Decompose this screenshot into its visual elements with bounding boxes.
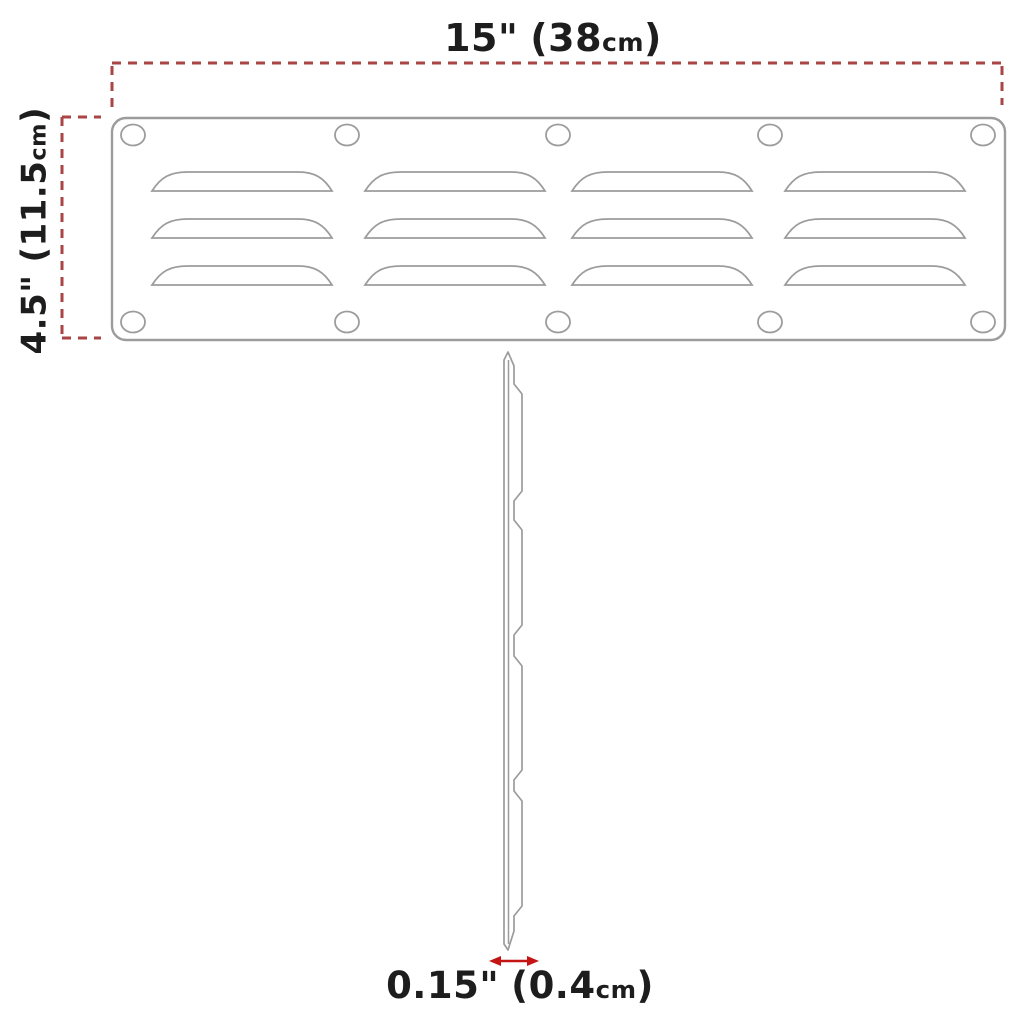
- louver-slot: [365, 266, 545, 285]
- screw-hole: [546, 125, 570, 146]
- louver-slot: [785, 266, 965, 285]
- thickness-arrow-head-left: [489, 956, 501, 966]
- diagram-drawing: [0, 0, 1024, 1024]
- screw-hole: [758, 125, 782, 146]
- vent-dimension-diagram: 15"(38cm) 4.5"(11.5cm) 0.15"(0.4cm): [0, 0, 1024, 1024]
- vent-front-view: [112, 118, 1005, 340]
- screw-hole: [121, 125, 145, 146]
- screw-hole: [546, 312, 570, 333]
- louver-slot: [152, 219, 332, 238]
- screw-hole: [758, 312, 782, 333]
- louver-slot: [572, 172, 752, 191]
- thickness-dimension-arrow: [489, 956, 539, 966]
- screw-hole: [971, 125, 995, 146]
- louver-slot: [365, 219, 545, 238]
- vent-side-view: [504, 352, 522, 950]
- louver-slot: [572, 266, 752, 285]
- louver-slot: [572, 219, 752, 238]
- louver-slot: [785, 219, 965, 238]
- louver-slot: [152, 172, 332, 191]
- louver-slot: [785, 172, 965, 191]
- width-dimension-line: [112, 63, 1002, 111]
- screw-hole: [971, 312, 995, 333]
- screw-hole: [121, 312, 145, 333]
- thickness-arrow-head-right: [527, 956, 539, 966]
- screw-hole: [335, 312, 359, 333]
- louver-slot: [152, 266, 332, 285]
- height-dimension-line: [62, 117, 101, 338]
- screw-hole: [335, 125, 359, 146]
- side-profile-outline: [504, 352, 522, 950]
- louver-slot: [365, 172, 545, 191]
